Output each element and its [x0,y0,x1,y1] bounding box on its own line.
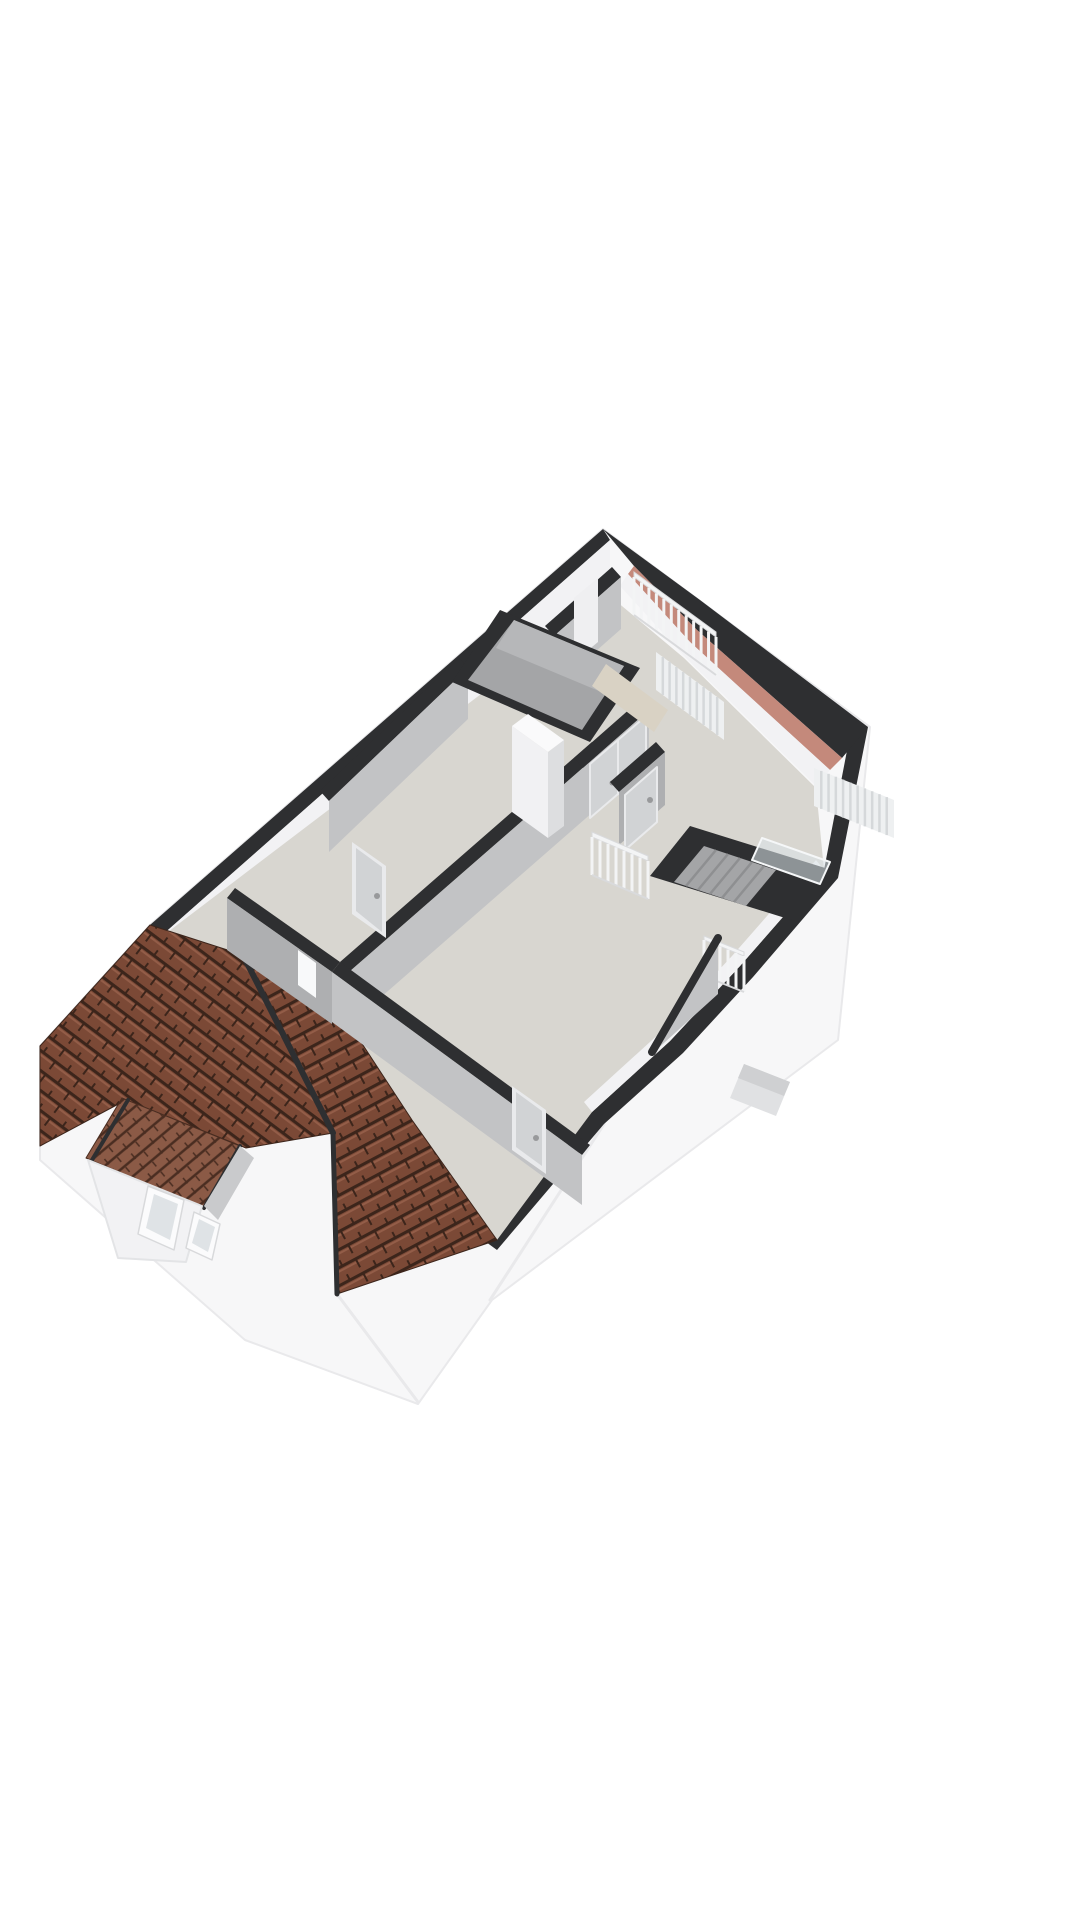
chimney-column-southeast-face [548,740,564,838]
hall-door-handle [647,797,653,803]
floor-plan-3d-render [0,0,1080,1920]
floor-plan-page [0,0,1080,1920]
bottom-room-door-handle [533,1135,539,1141]
bedroom-door-handle [374,893,380,899]
